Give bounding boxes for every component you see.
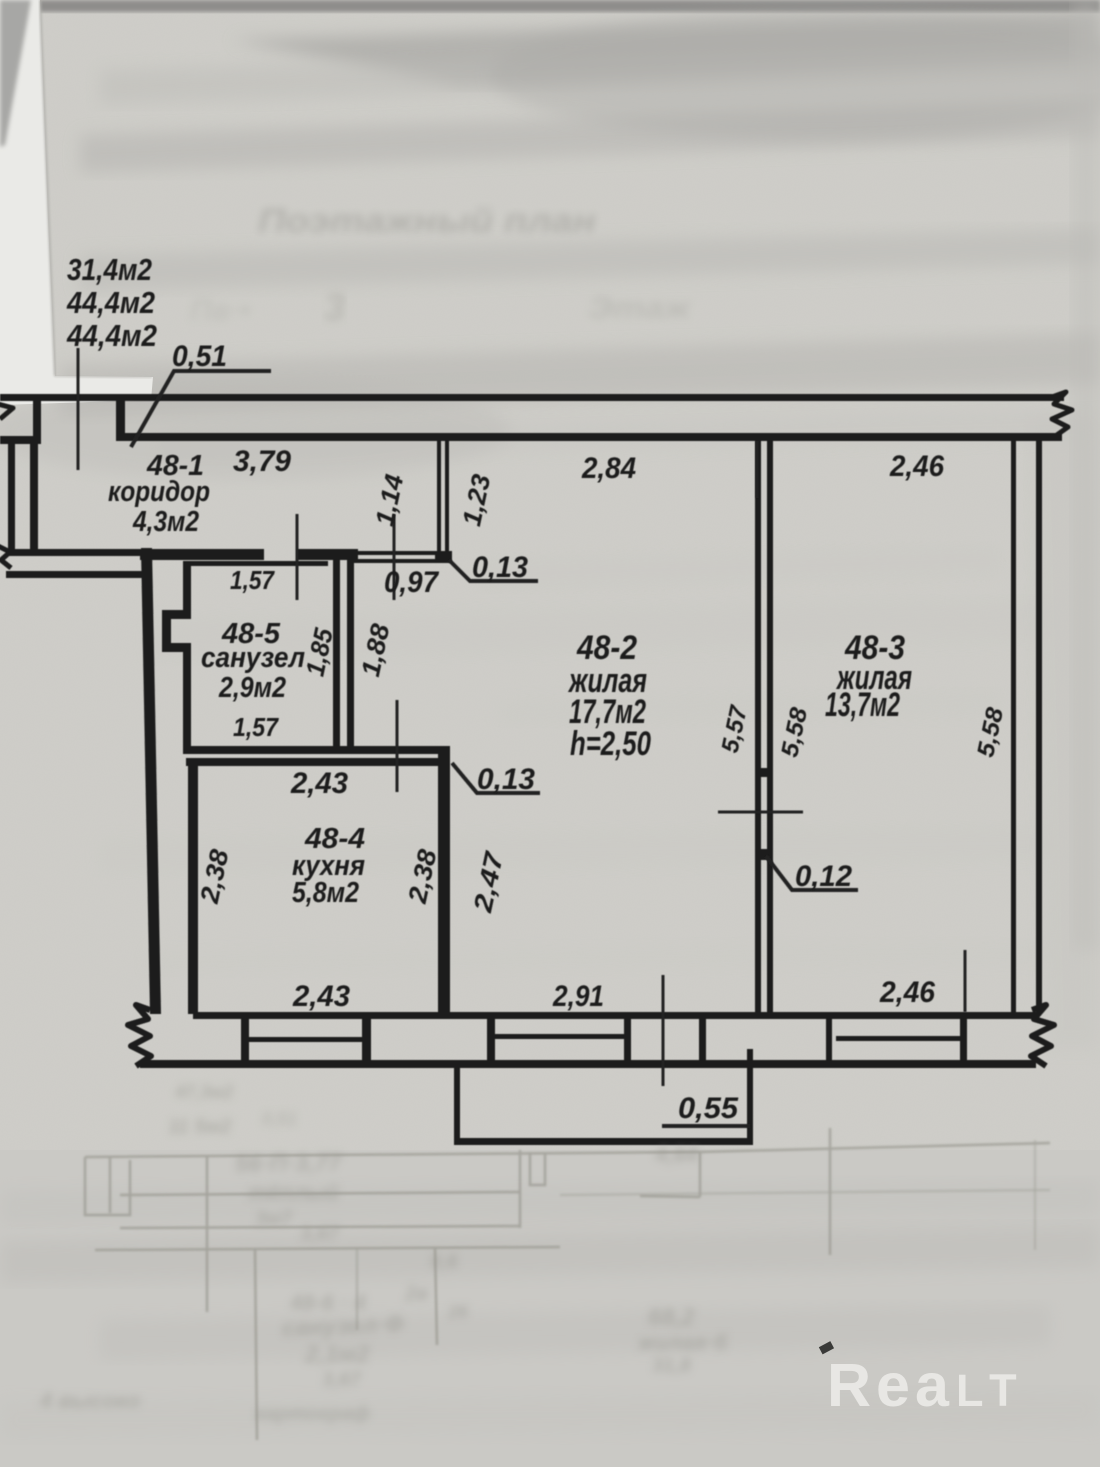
svg-text:санузел·Ф: санузел·Ф xyxy=(281,1311,404,1342)
svg-text:4 высоко: 4 высоко xyxy=(39,1388,141,1413)
svg-text:3,79: 3,79 xyxy=(233,445,291,478)
svg-text:2,46: 2,46 xyxy=(889,450,944,483)
svg-text:0,6: 0,6 xyxy=(430,1251,459,1273)
svg-text:0,55: 0,55 xyxy=(678,1092,739,1125)
svg-text:Пв·•: Пв·• xyxy=(190,294,250,327)
svg-text:0,51: 0,51 xyxy=(262,1109,297,1129)
svg-text:2,43: 2,43 xyxy=(292,980,350,1013)
svg-text:1,57: 1,57 xyxy=(233,712,279,742)
svg-text:2,43: 2,43 xyxy=(290,767,348,800)
svg-text:Поэтажный план: Поэтажный план xyxy=(258,202,596,239)
svg-text:4,3м2: 4,3м2 xyxy=(132,506,199,538)
svg-text:коридор: коридор xyxy=(108,476,210,508)
svg-text:11 5м2: 11 5м2 xyxy=(168,1116,231,1138)
svg-text:56·П·3,77: 56·П·3,77 xyxy=(235,1149,344,1178)
svg-text:3,67: 3,67 xyxy=(300,1223,340,1245)
svg-text:2в: 2в xyxy=(404,1283,428,1305)
svg-text:2,84: 2,84 xyxy=(581,452,636,485)
svg-text:0,97: 0,97 xyxy=(384,566,439,599)
svg-text:3: 3 xyxy=(324,287,345,329)
svg-text:2,46: 2,46 xyxy=(879,976,935,1009)
svg-text:44,4м2: 44,4м2 xyxy=(66,285,155,320)
svg-text:13,7м2: 13,7м2 xyxy=(825,686,900,724)
svg-text:Этаж: Этаж xyxy=(588,290,692,325)
svg-text:31,4м2: 31,4м2 xyxy=(67,252,152,287)
svg-text:0,13: 0,13 xyxy=(472,551,528,584)
svg-text:жилая·б: жилая·б xyxy=(637,1330,729,1355)
svg-text:LT: LT xyxy=(956,1365,1026,1416)
svg-text:44,4м2: 44,4м2 xyxy=(66,318,157,353)
svg-text:2,1м2: 2,1м2 xyxy=(304,1341,370,1368)
svg-text:3м7: 3м7 xyxy=(255,1208,293,1230)
svg-text:47,3м2: 47,3м2 xyxy=(174,1082,233,1102)
svg-text:26: 26 xyxy=(447,1302,469,1322)
svg-text:3,67: 3,67 xyxy=(322,1369,362,1391)
svg-text:0,51: 0,51 xyxy=(172,340,227,373)
svg-text:68,2: 68,2 xyxy=(648,1304,695,1331)
svg-text:h=2,50: h=2,50 xyxy=(570,725,651,763)
svg-text:31,8: 31,8 xyxy=(652,1355,692,1377)
svg-text:2,91: 2,91 xyxy=(552,980,604,1013)
svg-text:тёплый: тёплый xyxy=(248,1180,340,1205)
svg-text:48-6 · 4: 48-6 · 4 xyxy=(289,1290,366,1315)
svg-text:картограф: картограф xyxy=(255,1403,370,1425)
svg-text:0,13: 0,13 xyxy=(477,763,535,796)
svg-text:1,57: 1,57 xyxy=(230,565,275,595)
svg-text:Rea: Rea xyxy=(827,1351,954,1419)
svg-text:санузел: санузел xyxy=(201,642,305,674)
svg-text:2,9м2: 2,9м2 xyxy=(218,672,286,704)
svg-text:4,64: 4,64 xyxy=(654,1142,698,1167)
svg-text:0,12: 0,12 xyxy=(795,860,852,893)
svg-text:5,8м2: 5,8м2 xyxy=(292,877,359,909)
